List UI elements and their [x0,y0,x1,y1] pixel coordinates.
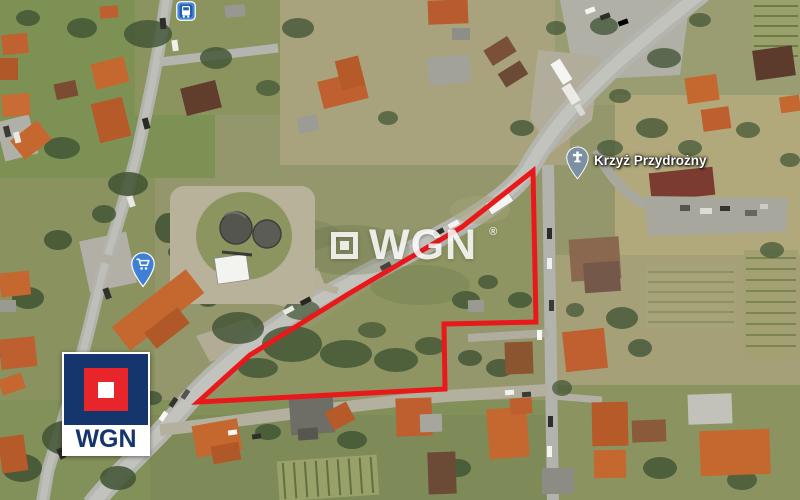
poi-wayside-cross[interactable]: Krzyż Przydrożny [566,146,707,180]
bus-stop-marker[interactable] [176,1,196,26]
wayside-cross-pin-icon [566,146,589,180]
wgn-logo-white-square [98,382,114,398]
wgn-logo-wordmark: WGN [64,425,148,454]
poi-label: Krzyż Przydrożny [594,153,707,168]
satellite-map-screenshot: Krzyż Przydrożny WGN ® WGN [0,0,800,500]
wgn-logo-text: WGN [75,427,136,452]
wgn-logo: WGN [62,352,150,456]
wgn-logo-red-square [84,368,128,411]
wgn-logo-emblem [64,354,148,425]
bus-icon [176,1,196,21]
shop-pin-marker[interactable] [131,252,155,293]
shopping-cart-pin-icon [131,252,155,288]
